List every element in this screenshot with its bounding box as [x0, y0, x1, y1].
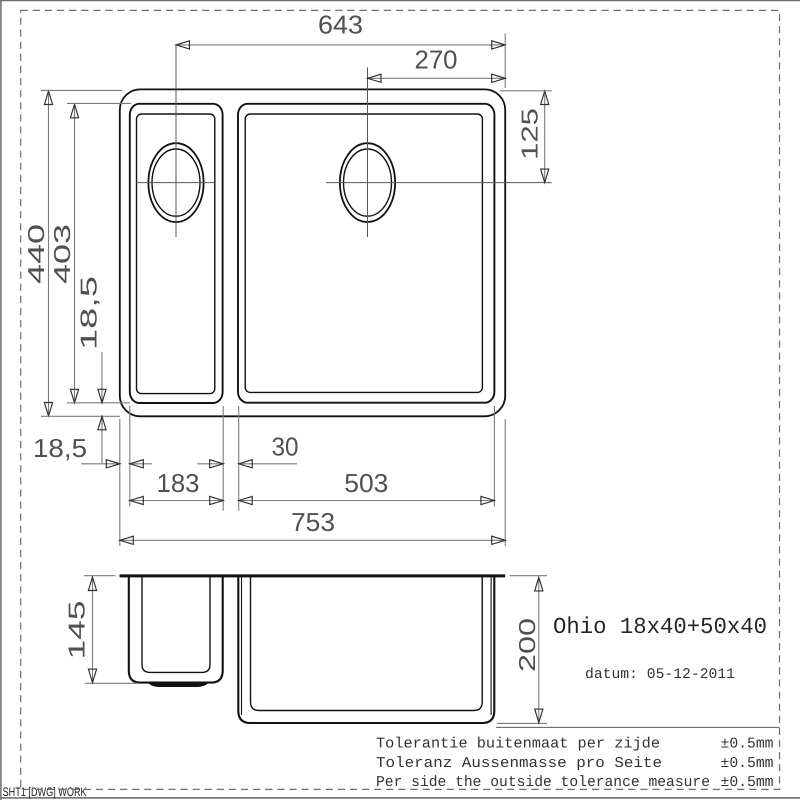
svg-text:Per side the outside tolerance: Per side the outside tolerance measure — [376, 774, 710, 791]
svg-text:18,5: 18,5 — [76, 276, 102, 350]
svg-text:30: 30 — [272, 432, 299, 462]
svg-text:±0.5mm: ±0.5mm — [721, 736, 774, 753]
svg-text:125: 125 — [517, 108, 543, 160]
svg-text:Toleranz Aussenmasse pro Seite: Toleranz Aussenmasse pro Seite — [376, 755, 662, 772]
svg-text:753: 753 — [291, 507, 335, 537]
svg-text:SHT1 [DWG] WORK: SHT1 [DWG] WORK — [3, 785, 88, 799]
svg-text:643: 643 — [318, 10, 363, 40]
svg-text:Tolerantie buitenmaat per zijd: Tolerantie buitenmaat per zijde — [376, 736, 660, 753]
svg-text:145: 145 — [64, 601, 90, 660]
svg-text:±0.5mm: ±0.5mm — [721, 755, 774, 772]
svg-text:±0.5mm: ±0.5mm — [721, 774, 774, 791]
svg-text:datum: 05-12-2011: datum: 05-12-2011 — [585, 667, 735, 683]
svg-text:403: 403 — [49, 224, 75, 284]
svg-text:503: 503 — [344, 468, 388, 498]
svg-text:270: 270 — [415, 45, 458, 75]
svg-text:18,5: 18,5 — [33, 433, 87, 463]
svg-text:200: 200 — [514, 618, 540, 672]
svg-text:440: 440 — [23, 224, 49, 284]
svg-text:183: 183 — [157, 468, 200, 498]
svg-text:Ohio 18x40+50x40: Ohio 18x40+50x40 — [553, 614, 767, 640]
